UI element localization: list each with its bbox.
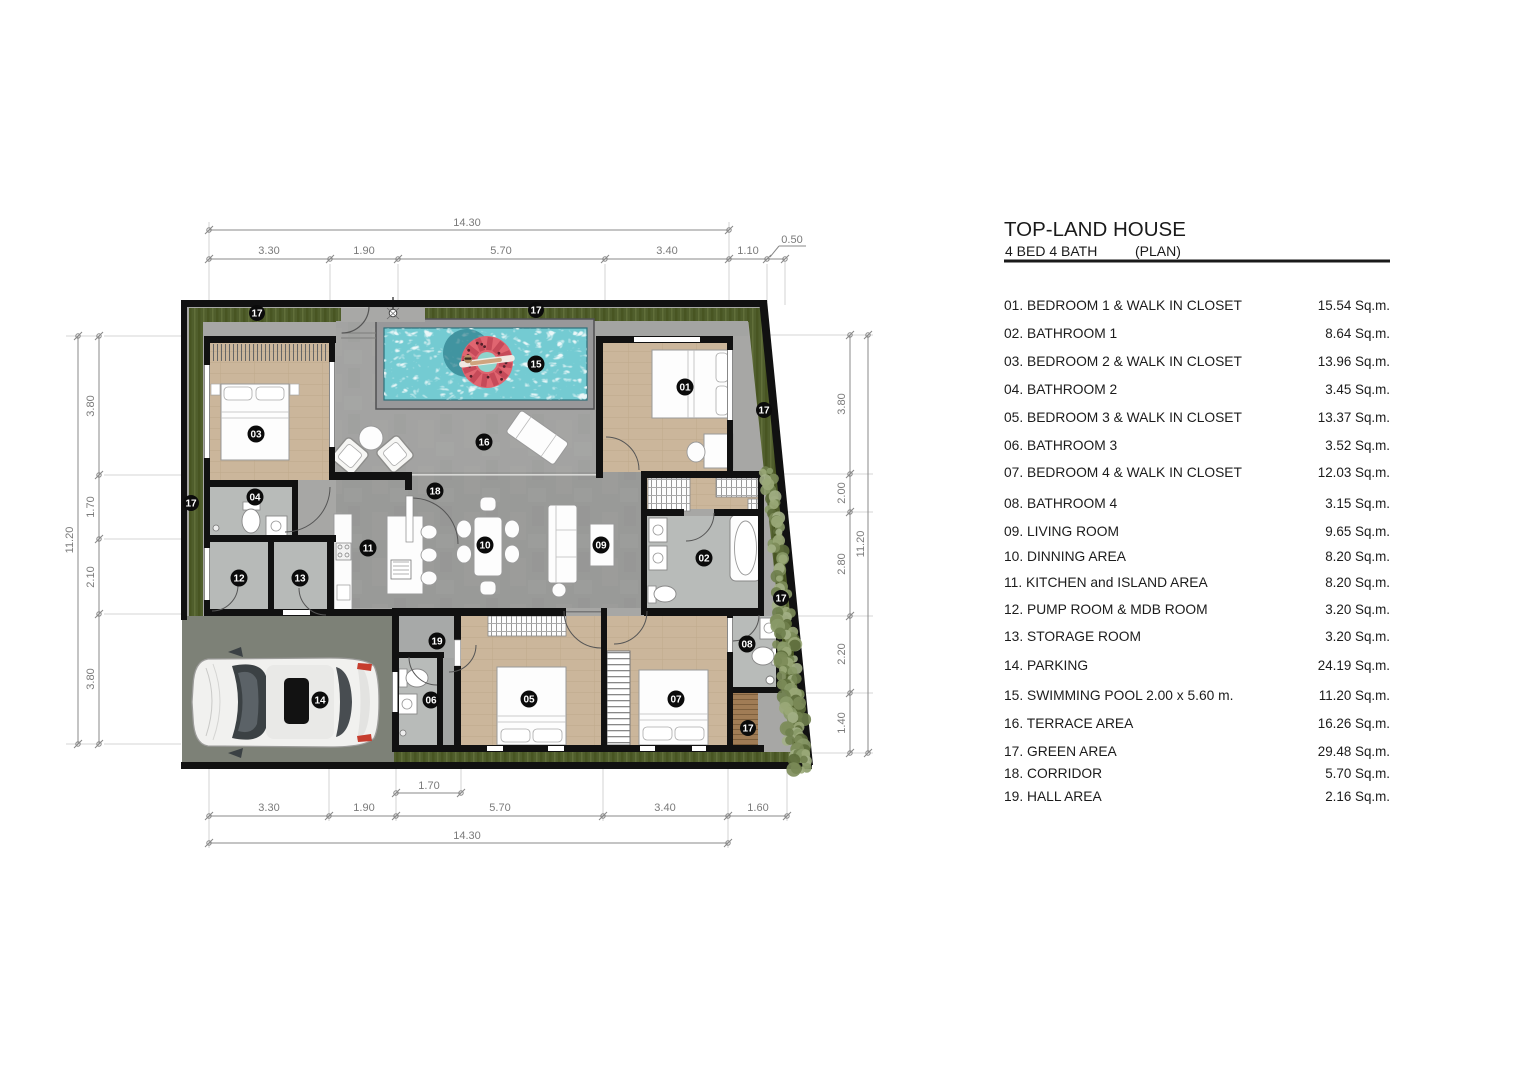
svg-text:3.80: 3.80 <box>836 393 848 414</box>
svg-text:3.40: 3.40 <box>654 802 675 814</box>
svg-text:1.90: 1.90 <box>353 802 374 814</box>
svg-text:5.70 Sq.m.: 5.70 Sq.m. <box>1325 766 1390 781</box>
svg-text:(PLAN): (PLAN) <box>1135 243 1181 259</box>
svg-text:05. BEDROOM 3 & WALK IN CLOSET: 05. BEDROOM 3 & WALK IN CLOSET <box>1004 410 1243 425</box>
svg-text:06. BATHROOM 3: 06. BATHROOM 3 <box>1004 438 1118 453</box>
svg-text:2.10: 2.10 <box>85 566 97 587</box>
svg-text:2.80: 2.80 <box>836 553 848 574</box>
svg-text:3.20 Sq.m.: 3.20 Sq.m. <box>1325 602 1390 617</box>
svg-text:01: 01 <box>679 383 691 394</box>
svg-text:08. BATHROOM 4: 08. BATHROOM 4 <box>1004 496 1118 511</box>
svg-text:11. KITCHEN and ISLAND AREA: 11. KITCHEN and ISLAND AREA <box>1004 575 1209 590</box>
svg-text:16.26 Sq.m.: 16.26 Sq.m. <box>1318 716 1390 731</box>
svg-text:2.20: 2.20 <box>836 643 848 664</box>
svg-text:10: 10 <box>479 541 491 552</box>
svg-text:1.10: 1.10 <box>737 245 758 257</box>
svg-text:5.70: 5.70 <box>489 802 510 814</box>
svg-text:2.00: 2.00 <box>836 482 848 503</box>
svg-text:17: 17 <box>742 724 754 735</box>
svg-text:1.40: 1.40 <box>836 712 848 733</box>
svg-text:3.15 Sq.m.: 3.15 Sq.m. <box>1325 496 1390 511</box>
svg-text:10. DINNING AREA: 10. DINNING AREA <box>1004 549 1127 564</box>
svg-text:13.96 Sq.m.: 13.96 Sq.m. <box>1318 354 1390 369</box>
svg-text:3.52 Sq.m.: 3.52 Sq.m. <box>1325 438 1390 453</box>
svg-text:3.40: 3.40 <box>656 245 677 257</box>
svg-text:3.30: 3.30 <box>258 245 279 257</box>
svg-text:3.45 Sq.m.: 3.45 Sq.m. <box>1325 382 1390 397</box>
svg-text:09. LIVING ROOM: 09. LIVING ROOM <box>1004 524 1119 539</box>
svg-text:29.48 Sq.m.: 29.48 Sq.m. <box>1318 744 1390 759</box>
svg-text:03: 03 <box>250 430 262 441</box>
svg-text:07. BEDROOM 4 & WALK IN CLOSET: 07. BEDROOM 4 & WALK IN CLOSET <box>1004 465 1243 480</box>
svg-text:05: 05 <box>523 695 535 706</box>
svg-text:09: 09 <box>595 541 607 552</box>
svg-text:19: 19 <box>431 637 443 648</box>
svg-text:06: 06 <box>425 696 437 707</box>
svg-text:13: 13 <box>294 574 306 585</box>
svg-text:TOP-LAND HOUSE: TOP-LAND HOUSE <box>1004 218 1186 241</box>
svg-text:11.20: 11.20 <box>855 531 867 558</box>
svg-text:18. CORRIDOR: 18. CORRIDOR <box>1004 766 1102 781</box>
svg-text:14.30: 14.30 <box>453 217 481 229</box>
svg-text:11.20: 11.20 <box>64 527 76 554</box>
svg-text:1.70: 1.70 <box>418 780 439 792</box>
svg-text:15: 15 <box>530 360 542 371</box>
svg-text:14: 14 <box>314 696 326 707</box>
svg-text:02. BATHROOM 1: 02. BATHROOM 1 <box>1004 326 1117 341</box>
svg-text:04. BATHROOM 2: 04. BATHROOM 2 <box>1004 382 1117 397</box>
svg-text:04: 04 <box>249 493 261 504</box>
svg-text:18: 18 <box>429 487 441 498</box>
svg-text:9.65 Sq.m.: 9.65 Sq.m. <box>1325 524 1390 539</box>
svg-text:8.64 Sq.m.: 8.64 Sq.m. <box>1325 326 1390 341</box>
svg-text:15.54 Sq.m.: 15.54 Sq.m. <box>1318 298 1390 313</box>
svg-text:16. TERRACE AREA: 16. TERRACE AREA <box>1004 716 1134 731</box>
svg-text:13. STORAGE ROOM: 13. STORAGE ROOM <box>1004 629 1141 644</box>
svg-text:08: 08 <box>741 640 753 651</box>
svg-text:3.30: 3.30 <box>258 802 279 814</box>
svg-text:01. BEDROOM 1 & WALK IN CLOSET: 01. BEDROOM 1 & WALK IN CLOSET <box>1004 298 1243 313</box>
svg-text:13.37 Sq.m.: 13.37 Sq.m. <box>1318 410 1390 425</box>
svg-text:0.50: 0.50 <box>781 234 802 246</box>
svg-text:17. GREEN AREA: 17. GREEN AREA <box>1004 744 1118 759</box>
svg-text:8.20 Sq.m.: 8.20 Sq.m. <box>1325 549 1390 564</box>
svg-text:12.03 Sq.m.: 12.03 Sq.m. <box>1318 465 1390 480</box>
svg-text:1.60: 1.60 <box>747 802 768 814</box>
svg-text:3.20 Sq.m.: 3.20 Sq.m. <box>1325 629 1390 644</box>
svg-text:8.20 Sq.m.: 8.20 Sq.m. <box>1325 575 1390 590</box>
svg-text:2.16 Sq.m.: 2.16 Sq.m. <box>1325 789 1390 804</box>
svg-text:4 BED 4 BATH: 4 BED 4 BATH <box>1005 243 1097 259</box>
svg-text:19. HALL AREA: 19. HALL AREA <box>1004 789 1102 804</box>
svg-text:24.19 Sq.m.: 24.19 Sq.m. <box>1318 658 1390 673</box>
svg-text:1.70: 1.70 <box>85 496 97 517</box>
svg-text:1.90: 1.90 <box>353 245 374 257</box>
svg-text:02: 02 <box>698 554 710 565</box>
svg-text:17: 17 <box>530 306 542 317</box>
svg-text:5.70: 5.70 <box>490 245 511 257</box>
svg-text:3.80: 3.80 <box>85 395 97 416</box>
svg-text:17: 17 <box>775 594 787 605</box>
svg-text:12: 12 <box>233 574 245 585</box>
svg-text:17: 17 <box>185 499 197 510</box>
svg-text:15. SWIMMING POOL 2.00 x 5.60: 15. SWIMMING POOL 2.00 x 5.60 m. <box>1004 688 1234 703</box>
svg-text:17: 17 <box>758 406 770 417</box>
svg-text:03. BEDROOM 2 & WALK IN CLOSET: 03. BEDROOM 2 & WALK IN CLOSET <box>1004 354 1243 369</box>
svg-text:17: 17 <box>251 309 263 320</box>
svg-text:3.80: 3.80 <box>85 668 97 689</box>
svg-text:12. PUMP ROOM & MDB ROOM: 12. PUMP ROOM & MDB ROOM <box>1004 602 1208 617</box>
svg-text:11.20 Sq.m.: 11.20 Sq.m. <box>1319 688 1390 703</box>
svg-text:14. PARKING: 14. PARKING <box>1004 658 1088 673</box>
svg-text:07: 07 <box>670 695 682 706</box>
svg-text:11: 11 <box>363 544 374 555</box>
svg-text:14.30: 14.30 <box>453 830 481 842</box>
svg-text:16: 16 <box>478 438 490 449</box>
